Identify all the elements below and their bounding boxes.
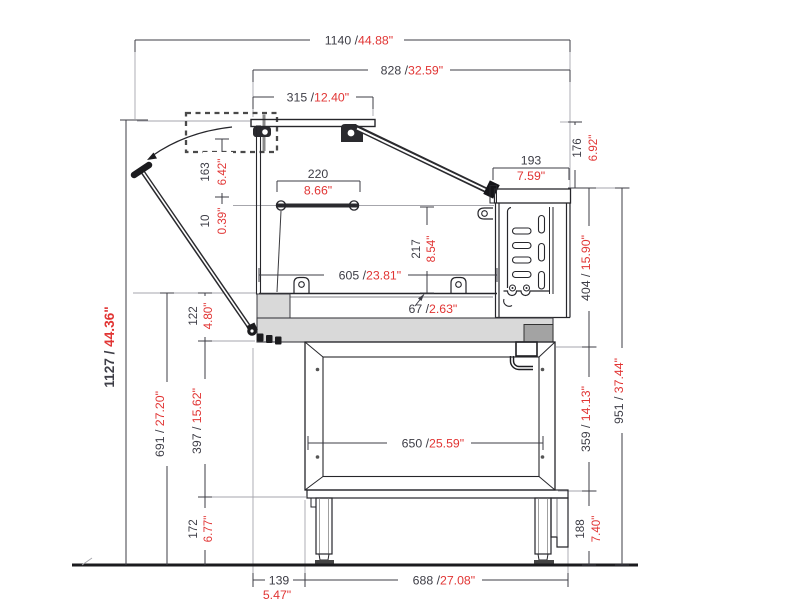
dim-rail-width-mm: 220 <box>308 167 329 181</box>
rear-side-panel <box>551 498 568 547</box>
dim-front-offset-mm: 139 <box>269 574 290 588</box>
lid-right-hinge-pin <box>348 130 355 137</box>
dim-leg-height-mm: 172 <box>187 519 200 538</box>
rear-unit-ear <box>478 208 493 219</box>
dim-interior-width-in: 23.81" <box>366 269 401 283</box>
dim-frame-inner-width-mm: 650 / <box>402 437 430 451</box>
glass-handle <box>134 165 149 175</box>
platform-dark-block <box>524 325 553 343</box>
under-frame <box>305 342 555 490</box>
dim-lid-width-in: 12.40" <box>314 91 349 105</box>
dim-rail-offset-mm: 10 <box>199 215 212 228</box>
technical-drawing: 1140 / 44.88" 828 / 32.59" 315 / 12.40" … <box>0 0 800 600</box>
dim-base-width-in: 27.08" <box>440 574 475 588</box>
dim-rear-total-height-label: 951 / 37.44" <box>612 358 626 424</box>
platform-band <box>257 318 553 342</box>
left-leg <box>316 498 332 554</box>
swing-arc <box>152 127 232 156</box>
dim-rear-total-height: 951 / 37.44" <box>612 188 630 565</box>
dim-lid-to-rail-mm: 163 <box>199 162 212 181</box>
dim-frame-height-label: 397 / 15.62" <box>190 388 204 454</box>
dim-rear-top-width-mm: 193 <box>521 154 542 168</box>
dim-rail-width: 220 8.66" <box>277 167 360 198</box>
dim-base-height-in: 7.40" <box>590 516 603 543</box>
dim-under-height-label: 359 / 14.13" <box>579 386 593 452</box>
dim-rear-top-height: 176 6.92" <box>568 122 604 188</box>
dim-left-stack: 122 4.80" 397 / 15.62" 172 6.77" <box>187 293 217 565</box>
dim-total-width-mm: 1140 / <box>325 34 359 48</box>
dim-under-height: 359 / 14.13" <box>579 347 597 491</box>
dim-lid-width: 315 / 12.40" <box>253 90 373 109</box>
dim-rail-width-in: 8.66" <box>304 184 332 198</box>
dim-front-offset-in: 5.47" <box>263 588 291 600</box>
dim-lid-to-rail-in: 6.42" <box>216 159 229 186</box>
dim-front-offset: 139 5.47" <box>253 573 305 600</box>
dim-body-width-in: 32.59" <box>408 64 443 78</box>
dim-total-width-in: 44.88" <box>358 34 393 48</box>
vent-panel-bottom <box>504 291 550 296</box>
dim-frame-inner-width: 650 / 25.59" <box>308 436 543 451</box>
dim-rear-top-height-mm: 176 <box>571 138 584 157</box>
dim-lid-to-rail: 163 6.42" 10 0.39" <box>199 139 233 240</box>
dim-deck-to-frame-mm: 122 <box>187 306 200 325</box>
rear-pivot-bracket <box>516 342 537 356</box>
dim-deck-to-frame-in: 4.80" <box>202 303 215 330</box>
dim-glass-front-height-in: 8.54" <box>425 236 438 263</box>
top-rail <box>276 201 358 210</box>
dim-rear-unit-height-label: 404 / 15.90" <box>579 235 593 301</box>
dim-leg-height-in: 6.77" <box>202 516 215 543</box>
dim-base-height-mm: 188 <box>574 519 587 538</box>
base-frame <box>307 490 568 564</box>
right-leg <box>535 498 551 554</box>
dim-body-width: 828 / 32.59" <box>253 63 570 82</box>
dim-base-width-mm: 688 / <box>413 574 441 588</box>
rear-unit-cap <box>495 189 571 203</box>
left-foot <box>319 554 329 560</box>
dim-total-width: 1140 / 44.88" <box>135 33 570 52</box>
front-glass-lower-pane <box>277 211 281 292</box>
right-foot <box>538 554 548 560</box>
dim-counter-height: 691 / 27.20" <box>153 293 174 565</box>
dim-body-width-mm: 828 / <box>381 64 409 78</box>
dim-rear-top-width: 193 7.59" <box>493 154 569 184</box>
dim-rail-offset-in: 0.39" <box>216 208 229 235</box>
lid-left-hinge <box>253 127 271 138</box>
dim-total-height: 1127 / 44.36" <box>102 120 148 565</box>
dim-total-height-label: 1127 / 44.36" <box>102 306 117 387</box>
dim-frame-inner-width-in: 25.59" <box>429 437 464 451</box>
lid-left-hinge-pin <box>262 129 268 135</box>
dim-glass-front-height-mm: 217 <box>410 239 423 258</box>
dim-rear-top-height-in: 6.92" <box>587 135 600 162</box>
bottom-shelf <box>307 490 568 498</box>
front-sill <box>257 294 290 318</box>
dim-interior-width-mm: 605 / <box>339 269 367 283</box>
dim-deck-thickness-mm: 67 / <box>408 302 429 316</box>
dim-glass-front-height: 217 8.54" <box>410 207 440 293</box>
deck-bracket-right <box>451 278 466 294</box>
vent-slots-vertical <box>539 216 545 290</box>
dim-lid-width-mm: 315 / <box>287 91 315 105</box>
rear-sloped-glass <box>356 128 500 199</box>
dim-rear-unit-height: 404 / 15.90" <box>579 188 597 347</box>
deck-bracket-left <box>294 278 309 294</box>
vent-slots-horizontal <box>513 228 532 278</box>
dim-base-width: 688 / 27.08" <box>305 573 568 588</box>
dim-rear-top-width-in: 7.59" <box>517 169 545 183</box>
dim-counter-height-label: 691 / 27.20" <box>153 391 167 457</box>
dim-base-height: 188 7.40" <box>574 491 609 565</box>
dim-deck-thickness-in: 2.63" <box>429 302 457 316</box>
